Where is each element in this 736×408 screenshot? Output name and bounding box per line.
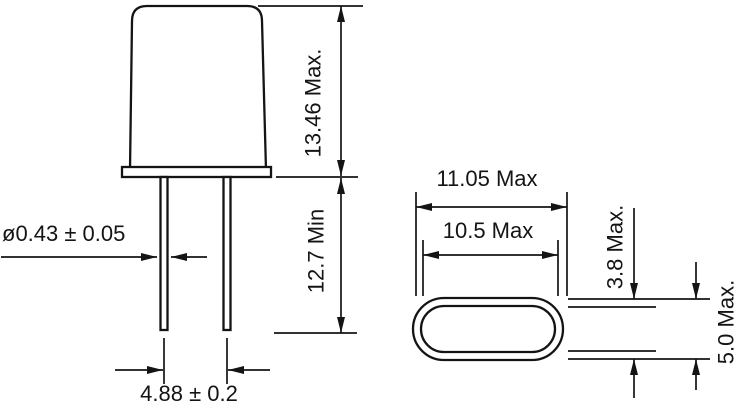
inner-width-label: 3.8 Max.	[603, 205, 628, 289]
dimension-lead-spacing: 4.88 ± 0.2	[115, 370, 270, 406]
outer-width-label: 5.0 Max.	[714, 280, 736, 364]
lead-left	[161, 177, 168, 330]
can-base-flange	[122, 167, 271, 177]
dimension-inner-width: 3.8 Max.	[603, 205, 635, 398]
lead-length-label: 12.7 Min	[304, 209, 329, 293]
dimension-can-height: 13.46 Max.	[301, 6, 342, 176]
outer-length-label: 11.05 Max	[436, 166, 537, 191]
lead-diameter-label: ø0.43 ± 0.05	[2, 221, 125, 246]
can-body	[130, 6, 266, 170]
top-view: 11.05 Max 10.5 Max 3.8 Max. 5.0 Max.	[413, 166, 736, 398]
dimension-lead-diameter: ø0.43 ± 0.05	[1, 221, 207, 257]
dimension-inner-length: 10.5 Max	[423, 218, 558, 255]
lead-right	[224, 177, 231, 330]
technical-drawing-canvas: 13.46 Max. 12.7 Min ø0.43 ± 0.05 4.88 ± …	[0, 0, 736, 408]
inner-length-label: 10.5 Max	[443, 218, 534, 243]
lead-spacing-label: 4.88 ± 0.2	[140, 381, 238, 406]
dimension-outer-length: 11.05 Max	[416, 166, 567, 207]
can-height-label: 13.46 Max.	[301, 49, 326, 158]
crystal-package-outline-drawing: 13.46 Max. 12.7 Min ø0.43 ± 0.05 4.88 ± …	[0, 0, 736, 408]
side-view: 13.46 Max. 12.7 Min ø0.43 ± 0.05 4.88 ± …	[1, 6, 363, 406]
dimension-lead-length: 12.7 Min	[304, 178, 342, 333]
dimension-outer-width: 5.0 Max.	[696, 262, 736, 390]
